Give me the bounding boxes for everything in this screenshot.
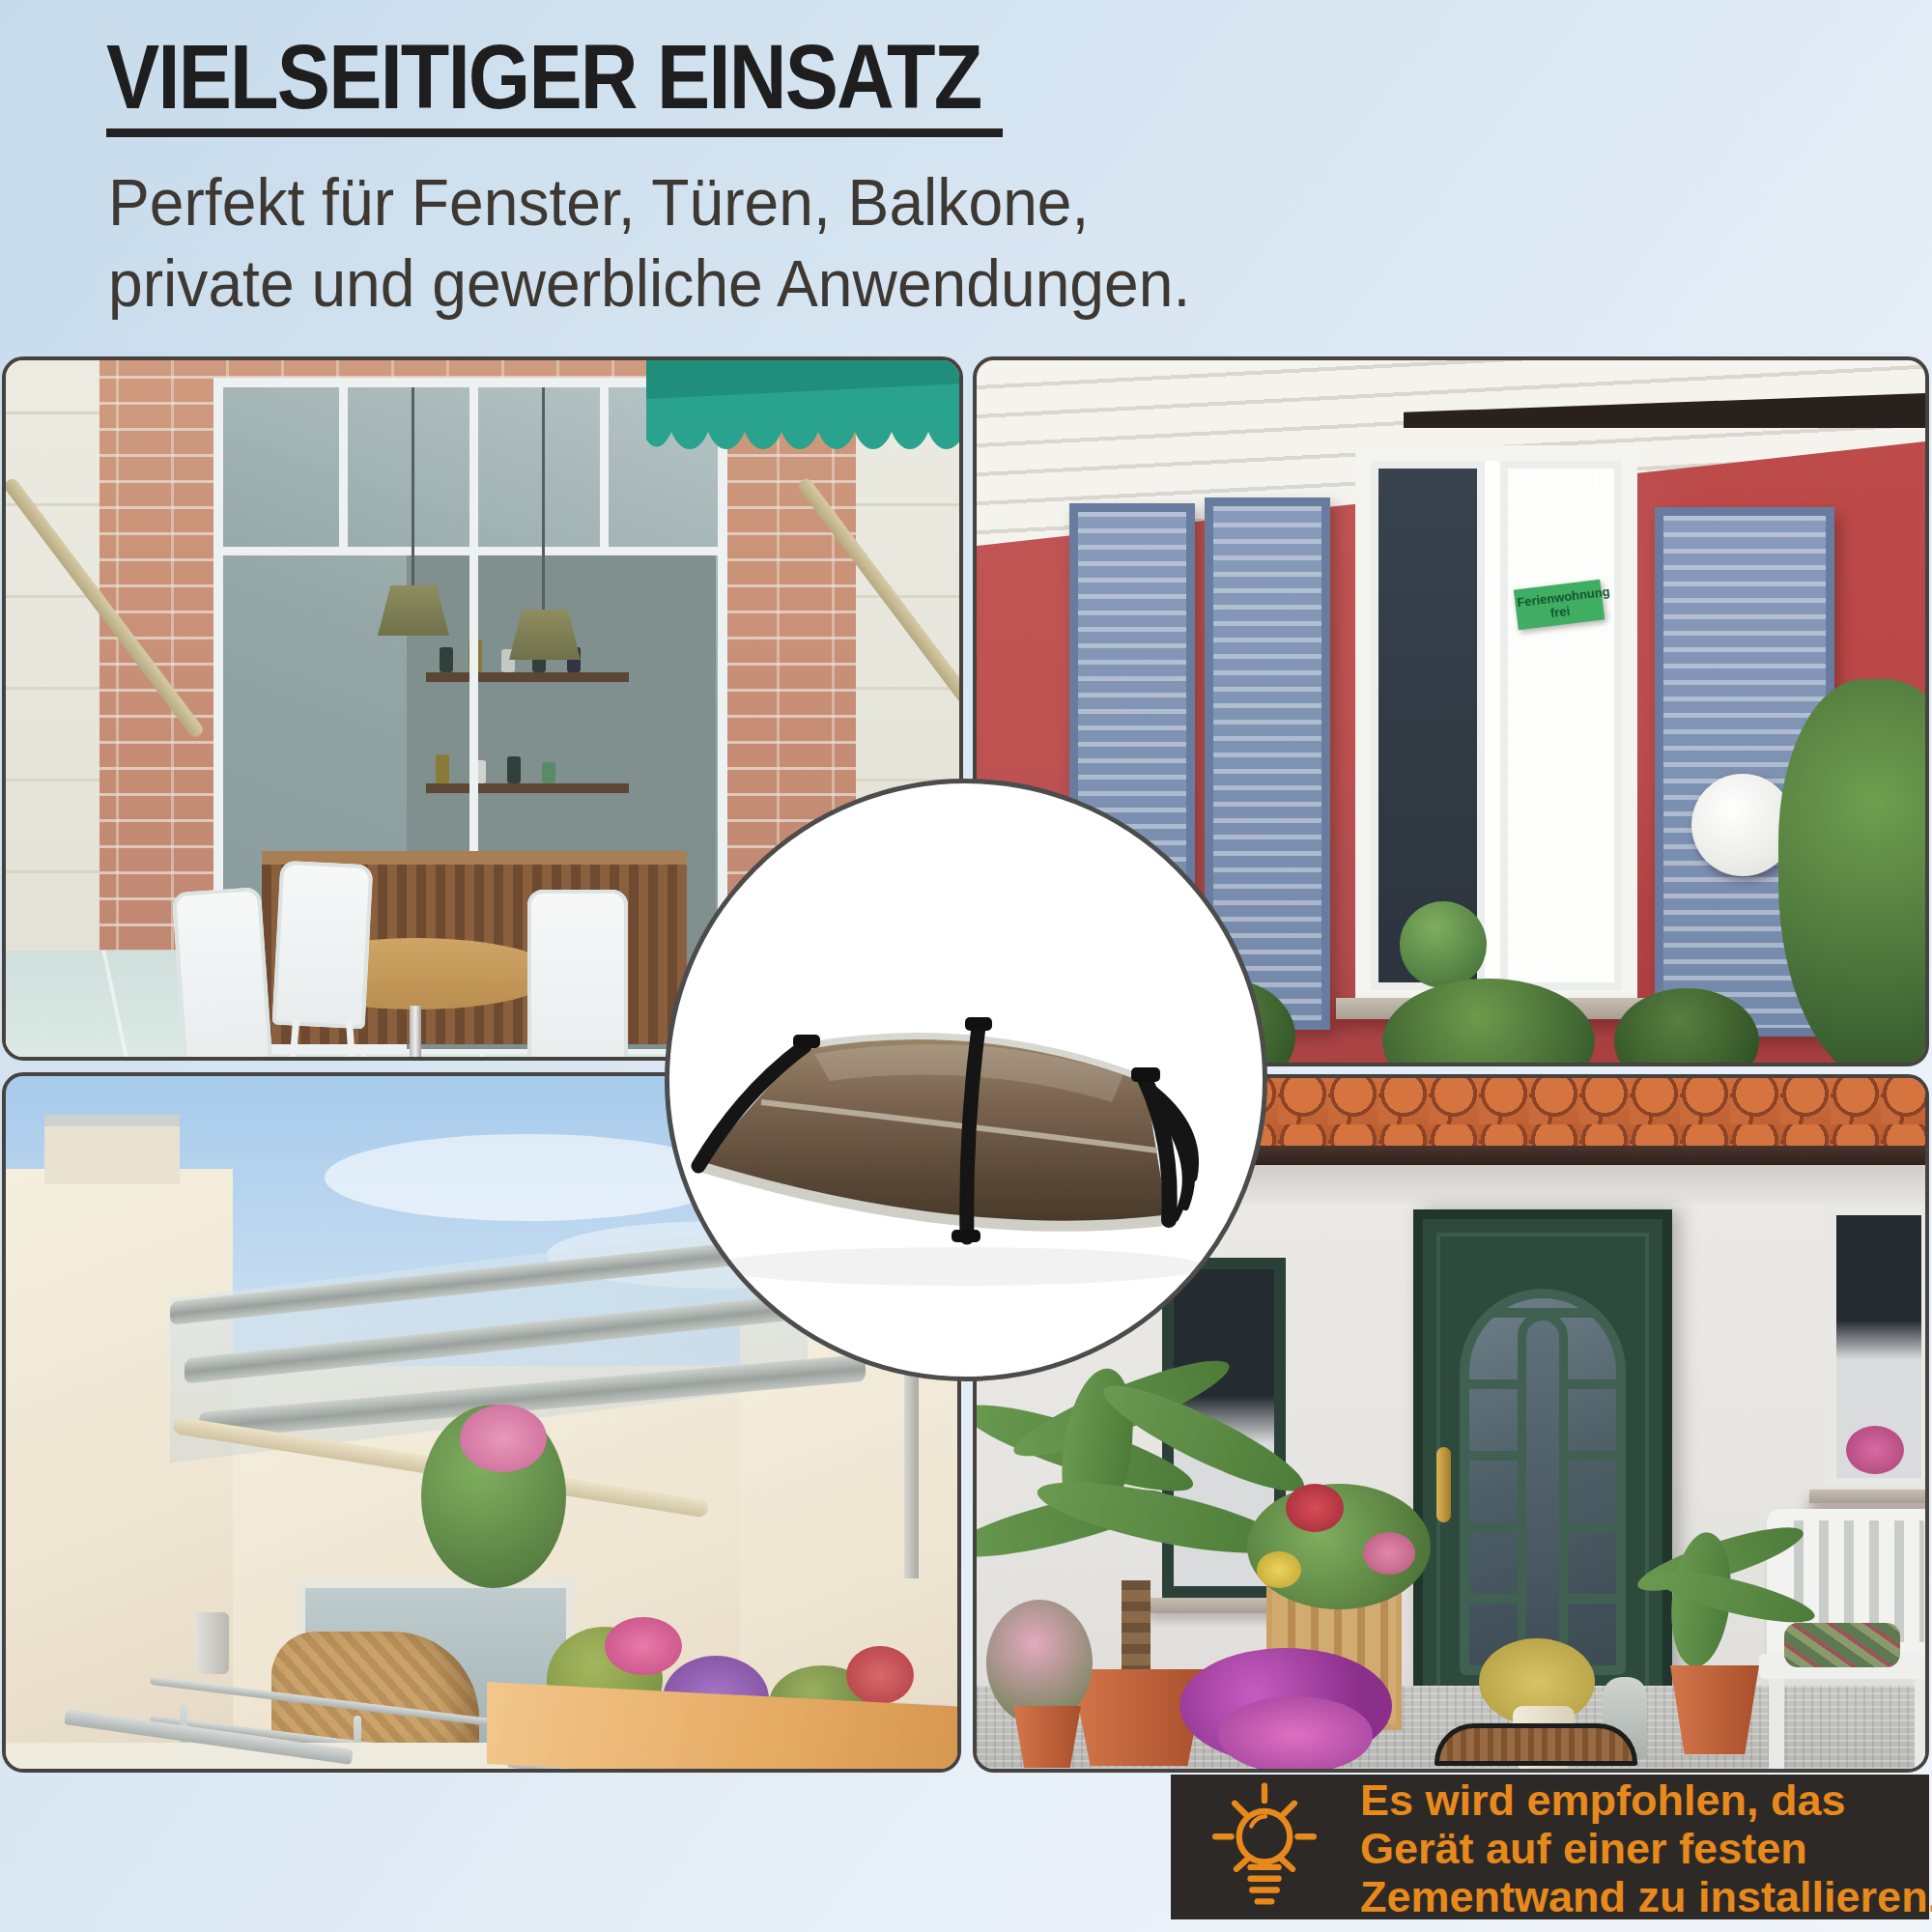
cafe-shelf	[426, 672, 629, 682]
chair	[172, 887, 272, 1061]
window-mullion	[469, 387, 478, 547]
window-sill	[1809, 1490, 1929, 1503]
doormat	[1435, 1723, 1637, 1766]
cafe-shelf	[426, 783, 629, 793]
note-line-3: Zementwand zu installieren.	[1360, 1873, 1932, 1921]
pink-flowers	[460, 1405, 547, 1472]
subtitle: Perfekt für Fenster, Türen, Balkone, pri…	[108, 162, 1190, 325]
green-awning	[646, 356, 963, 469]
window-mullion	[339, 387, 348, 547]
title-underline	[106, 128, 1003, 137]
terracotta-pot	[1670, 1665, 1759, 1754]
pendant-cord	[412, 387, 414, 585]
pink-flowers	[1363, 1532, 1415, 1575]
window-plant	[1400, 901, 1487, 988]
plant	[1778, 679, 1929, 1066]
product-inset-circle	[665, 779, 1267, 1381]
jar	[542, 762, 555, 783]
cloud	[325, 1134, 730, 1221]
window-mullion	[600, 387, 609, 547]
pendant-cord	[542, 387, 545, 610]
yellow-flowers	[1257, 1551, 1301, 1588]
chair	[527, 890, 628, 1061]
door-canopy-product	[669, 783, 1263, 1377]
door-handle	[1436, 1447, 1451, 1522]
product-marketing-image: VIELSEITIGER EINSATZ Perfekt für Fenster…	[0, 0, 1932, 1932]
white-bench	[1767, 1509, 1929, 1770]
bench-leg	[1769, 1679, 1784, 1770]
jar	[507, 756, 521, 783]
door-arched-glazing	[1460, 1289, 1626, 1675]
subtitle-line-1: Perfekt für Fenster, Türen, Balkone,	[108, 162, 1190, 243]
window-white-frame: Ferienwohnung frei	[1355, 445, 1637, 1006]
purple-petunias	[1218, 1696, 1373, 1773]
window-casement-curtain	[1500, 461, 1622, 990]
red-flowers	[1286, 1484, 1344, 1532]
downpipe	[904, 1366, 919, 1578]
roof-parapet	[44, 1115, 180, 1184]
jar	[436, 754, 449, 783]
flower-cluster	[605, 1617, 682, 1675]
table-pedestal	[410, 1006, 421, 1061]
lightbulb-icon	[1206, 1782, 1323, 1914]
note-text: Es wird empfohlen, das Gerät auf einer f…	[1360, 1776, 1932, 1921]
subtitle-line-2: private und gewerbliche Anwendungen.	[108, 243, 1190, 325]
note-line-2: Gerät auf einer festen	[1360, 1825, 1932, 1873]
bench-cushion	[1784, 1623, 1900, 1667]
door-glazing-center	[1518, 1312, 1568, 1656]
sill-flowers	[1846, 1426, 1904, 1474]
page-title: VIELSEITIGER EINSATZ	[106, 27, 980, 128]
note-line-1: Es wird empfohlen, das	[1360, 1776, 1932, 1825]
recommendation-note: Es wird empfohlen, das Gerät auf einer f…	[1171, 1775, 1929, 1919]
wall-lantern	[194, 1612, 229, 1674]
terracotta-pot	[1013, 1706, 1081, 1768]
bench-leg	[1915, 1679, 1929, 1770]
chair	[272, 861, 374, 1030]
jar	[440, 647, 453, 672]
flower-cluster	[846, 1646, 914, 1704]
